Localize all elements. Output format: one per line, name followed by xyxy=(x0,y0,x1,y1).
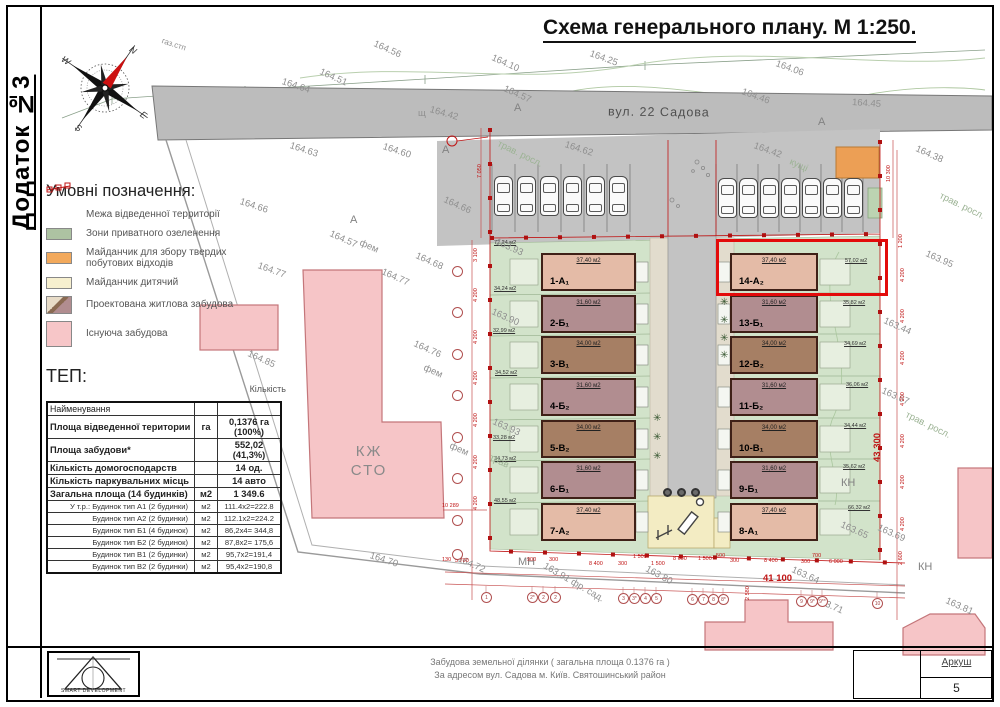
axis-bubble xyxy=(452,307,463,318)
sheetbox-divider xyxy=(920,651,921,698)
building-area: 31,60 м2 xyxy=(732,466,816,472)
building-area: 34,00 м2 xyxy=(732,425,816,431)
tep-cell: м2 xyxy=(195,537,218,549)
axis-label: 3* xyxy=(632,596,637,602)
existing-swatch xyxy=(46,321,72,347)
tep-cell: Кількість домогосподарств xyxy=(47,462,195,475)
axis-label: 6 xyxy=(691,597,694,603)
building-2: 31,60 м22-Б₁ xyxy=(541,295,636,333)
tep-cell: 86,2х4= 344,8 xyxy=(218,525,282,537)
appendix-label: Додаток №3 xyxy=(8,30,38,230)
tep-cell: м2 xyxy=(195,525,218,537)
dimension-label: 7 050 xyxy=(477,164,483,178)
building-id: 10-В₁ xyxy=(739,443,764,454)
tep-cell: м2 xyxy=(195,513,218,525)
legend-item-boundary: Межа відведенної территорії xyxy=(46,209,286,221)
tep-cell: м2 xyxy=(195,561,218,574)
building-10: 34,00 м210-В₁ xyxy=(730,420,818,458)
tep-cell: 112.1х2=224.2 xyxy=(218,513,282,525)
tree-icon: ✳ xyxy=(653,451,661,462)
car-icon xyxy=(844,178,863,218)
dimension-label: 1 200 xyxy=(898,234,904,248)
tep-cell: 95,4х2=190,8 xyxy=(218,561,282,574)
garden-area-label: 34,52 м2 xyxy=(495,370,517,376)
tree-icon: ✳ xyxy=(720,315,728,326)
axis-bubble: 4 xyxy=(640,593,651,604)
building-9: 31,60 м29-Б₁ xyxy=(730,461,818,499)
building-area: 34,00 м2 xyxy=(543,341,634,347)
tep-cell: 14 авто xyxy=(218,475,282,488)
axis-bubble: 5 xyxy=(651,593,662,604)
axis-bubble xyxy=(452,473,463,484)
tep-cell xyxy=(195,462,218,475)
dimension-label: 4 200 xyxy=(900,392,906,406)
axis-bubble: 2 xyxy=(550,592,561,603)
tep-cell: м2 xyxy=(195,549,218,561)
building-11: 31,60 м211-Б₂ xyxy=(730,378,818,416)
car-icon xyxy=(494,176,513,216)
table-row: Будинок тип В1 (2 будинки)м295,7х2=191,4 xyxy=(47,549,281,561)
building-area: 31,60 м2 xyxy=(543,300,634,306)
table-row: Найменування xyxy=(47,402,281,416)
road-axis-label: А xyxy=(350,214,357,226)
table-row: Загальна площа (14 будинків)м21 349.6 xyxy=(47,488,281,501)
dimension-label: 4 200 xyxy=(473,371,479,385)
footer-divider xyxy=(8,646,992,648)
sheet-label: Аркуш xyxy=(922,657,991,668)
tep-cell: 95,7х2=191,4 xyxy=(218,549,282,561)
dimension-label: 700 xyxy=(812,553,821,559)
tep-qty-header: Кількість xyxy=(250,384,286,394)
car-icon xyxy=(563,176,582,216)
axis-bubble: 8* xyxy=(718,594,729,605)
road-axis-label: А xyxy=(514,102,521,114)
legend-item-green: Зони приватного озеленення xyxy=(46,228,286,240)
dimension-label: 4 200 xyxy=(900,351,906,365)
dimension-label: 4 200 xyxy=(473,455,479,469)
legend-item-label: Майданчик дитячий xyxy=(86,277,246,289)
axis-bubble: 6 xyxy=(687,594,698,605)
legend-item-label: Майданчик для збору твердих побутових ві… xyxy=(86,247,246,270)
garden-area-label: 34,69 м2 xyxy=(844,341,866,347)
dimension-label: 2 600 xyxy=(898,551,904,565)
footer-line1: Забудова земельної ділянки ( загальна пл… xyxy=(340,656,760,669)
sheet-number-box: Аркуш 5 xyxy=(853,650,992,699)
tree-icon: ✳ xyxy=(653,413,661,424)
car-icon xyxy=(760,178,779,218)
sheet-inner-border xyxy=(40,7,42,698)
green-zone-swatch xyxy=(46,228,72,240)
table-row: Будинок тип Б2 (2 будинок)м287,8х2= 175,… xyxy=(47,537,281,549)
car-icon xyxy=(718,178,737,218)
playground-swatch xyxy=(46,277,72,289)
tep-cell: Будинок тип В1 (2 будинки) xyxy=(47,549,195,561)
axis-bubble: 10 xyxy=(872,598,883,609)
waste-swatch xyxy=(46,252,72,264)
axis-bubble xyxy=(452,349,463,360)
tep-cell xyxy=(195,439,218,462)
elevation-label: 164.45 xyxy=(852,97,882,110)
dimension-label: 4 200 xyxy=(473,496,479,510)
tep-cell: 1 349.6 xyxy=(218,488,282,501)
annotation-label: КН xyxy=(918,561,932,573)
building-id: 8-А₁ xyxy=(739,526,758,537)
dimension-label: 300 xyxy=(730,558,739,564)
dimension-label: 1 500 xyxy=(651,561,665,567)
car-icon xyxy=(739,178,758,218)
building-6: 31,60 м26-Б₁ xyxy=(541,461,636,499)
axis-bubble xyxy=(452,432,463,443)
legend-item-playground: Майданчик дитячий xyxy=(46,277,286,289)
tree-icon: ✳ xyxy=(653,432,661,443)
garden-area-label: 66,32 м2 xyxy=(848,505,870,511)
building-area: 37,40 м2 xyxy=(732,508,816,514)
tep-block: ТЕП: Кількість Найменування Площа відвед… xyxy=(46,366,286,574)
axis-bubble xyxy=(452,549,463,560)
axis-label: 3 xyxy=(622,596,625,602)
dimension-total-label: 43 300 xyxy=(872,433,883,462)
building-id: 4-Б₂ xyxy=(550,401,570,412)
tep-value-cell xyxy=(218,402,282,416)
car-icon xyxy=(781,178,800,218)
tep-cell xyxy=(195,475,218,488)
table-row: Будинок тип Б1 (4 будинок)м286,2х4= 344,… xyxy=(47,525,281,537)
sheetbox-divider xyxy=(920,677,991,678)
dimension-label: 300 xyxy=(618,561,627,567)
building-id: 1-А₁ xyxy=(550,276,569,287)
building-area: 34,00 м2 xyxy=(732,341,816,347)
building-id: 3-В₁ xyxy=(550,359,569,370)
dimension-label: 8 400 xyxy=(589,561,603,567)
tep-cell: 552,02 (41,3%) xyxy=(218,439,282,462)
dimension-label: 4 200 xyxy=(900,475,906,489)
dimension-label: 10 289 xyxy=(442,503,459,509)
axis-label: 2 xyxy=(554,595,557,601)
page-title: Схема генерального плану. М 1:250. xyxy=(543,16,916,43)
dimension-label: 10 300 xyxy=(886,165,892,182)
garden-area-label: 32,99 м2 xyxy=(493,328,515,334)
garden-area-label: 48,55 м2 xyxy=(494,498,516,504)
building-area: 31,60 м2 xyxy=(543,383,634,389)
garden-area-label: 35,82 м2 xyxy=(843,300,865,306)
axis-label: 5 xyxy=(655,596,658,602)
building-3: 34,00 м23-В₁ xyxy=(541,336,636,374)
tep-cell: м2 xyxy=(195,488,218,501)
dimension-label: 2 580 xyxy=(745,586,751,600)
garage-label-line1: КЖ xyxy=(344,443,394,462)
legend-item-proposed: Проектована житлова забудова xyxy=(46,296,286,314)
car-icon xyxy=(802,178,821,218)
dimension-label: 6 000 xyxy=(829,559,843,565)
garage-label-line2: СТО xyxy=(344,462,394,481)
building-4: 31,60 м24-Б₂ xyxy=(541,378,636,416)
dimension-label: 500 xyxy=(716,553,725,559)
legend-item-label: Існуюча забудова xyxy=(86,328,246,340)
garden-area-label: 34,44 м2 xyxy=(844,423,866,429)
dimension-label: 4 200 xyxy=(900,268,906,282)
table-row: Будинок тип А2 (2 будинки)м2112.1х2=224.… xyxy=(47,513,281,525)
dimension-label: 4 200 xyxy=(473,413,479,427)
dimension-label: 130 xyxy=(442,557,451,563)
building-id: 2-Б₁ xyxy=(550,318,569,329)
building-8: 37,40 м28-А₁ xyxy=(730,503,818,541)
building-5: 34,00 м25-В₂ xyxy=(541,420,636,458)
axis-bubble: 2 xyxy=(538,592,549,603)
building-7: 37,40 м27-А₂ xyxy=(541,503,636,541)
building-id: 6-Б₁ xyxy=(550,484,569,495)
highlight-building-14 xyxy=(716,239,888,296)
tep-cell: Загальна площа (14 будинків) xyxy=(47,488,195,501)
dimension-label: 3 100 xyxy=(473,248,479,262)
legend: Умовні позначення: Межа відведенної терр… xyxy=(46,182,286,354)
sheet-border xyxy=(6,5,994,702)
dimension-label: 1 500 xyxy=(633,554,647,560)
tep-cell: 111.4х2=222.8 xyxy=(218,501,282,513)
dimension-label: 4 200 xyxy=(900,309,906,323)
car-icon xyxy=(586,176,605,216)
street-name-label: вул. 22 Садова xyxy=(608,105,710,120)
building-area: 31,60 м2 xyxy=(732,383,816,389)
tep-cell: Кількість паркувальних місць xyxy=(47,475,195,488)
building-area: 31,60 м2 xyxy=(543,466,634,472)
tep-cell: Будинок тип А2 (2 будинки) xyxy=(47,513,195,525)
building-id: 12-В₂ xyxy=(739,359,764,370)
building-area: 37,40 м2 xyxy=(543,508,634,514)
annotation-label: щ xyxy=(418,108,426,119)
road-axis-label: А xyxy=(442,144,449,156)
axis-bubble: 1 xyxy=(481,592,492,603)
table-row: Кількість паркувальних місць14 авто xyxy=(47,475,281,488)
legend-item-label: Проектована житлова забудова xyxy=(86,299,246,311)
building-1: 37,40 м21-А₁ xyxy=(541,253,636,291)
tree-row-icon xyxy=(691,488,700,497)
tep-cell: м2 xyxy=(195,501,218,513)
tep-cell: 87,8х2= 175,6 xyxy=(218,537,282,549)
garden-area-label: 35,62 м2 xyxy=(843,464,865,470)
garden-area-label: 57,02 м2 xyxy=(845,258,867,264)
tep-cell: Будинок тип В2 (2 будинки) xyxy=(47,561,195,574)
tep-cell: га xyxy=(195,416,218,439)
axis-bubble xyxy=(452,515,463,526)
tree-icon: ✳ xyxy=(720,297,728,308)
axis-label: 7 xyxy=(702,597,705,603)
tep-cell: У т.р.: Будинок тип А1 (2 будинки) xyxy=(47,501,195,513)
dimension-label: 300 xyxy=(549,557,558,563)
plan-sheet: N E S W Додаток №3 Схема генерального пл… xyxy=(0,0,1000,707)
building-12: 34,00 м212-В₂ xyxy=(730,336,818,374)
axis-bubble: 3* xyxy=(629,593,640,604)
tep-unit-cell xyxy=(195,402,218,416)
dimension-label: 4 200 xyxy=(473,330,479,344)
building-area: 37,40 м2 xyxy=(543,258,634,264)
axis-label: 9* xyxy=(810,599,815,605)
tree-row-icon xyxy=(663,488,672,497)
building-id: 7-А₂ xyxy=(550,526,570,537)
axis-label: 9 xyxy=(800,599,803,605)
legend-item-existing: Існуюча забудова xyxy=(46,321,286,347)
car-icon xyxy=(823,178,842,218)
building-id: 11-Б₂ xyxy=(739,401,763,412)
building-area: 31,60 м2 xyxy=(732,300,816,306)
garden-area-label: 34,24 м2 xyxy=(494,286,516,292)
axis-bubble: 9** xyxy=(817,596,828,607)
dimension-label: 900 xyxy=(527,557,536,563)
dimension-label: 4 200 xyxy=(900,434,906,448)
building-id: 5-В₂ xyxy=(550,443,570,454)
axis-label: 10 xyxy=(875,601,881,607)
tep-name-header: Найменування xyxy=(47,402,195,416)
axis-bubble: 3 xyxy=(618,593,629,604)
car-icon xyxy=(540,176,559,216)
table-row: У т.р.: Будинок тип А1 (2 будинки)м2111.… xyxy=(47,501,281,513)
table-row: Будинок тип В2 (2 будинки)м295,4х2=190,8 xyxy=(47,561,281,574)
car-icon xyxy=(609,176,628,216)
company-logo: SMART DEVELOPMENT xyxy=(47,651,140,697)
car-icon xyxy=(517,176,536,216)
axis-label: 9** xyxy=(819,599,826,605)
footer-line2: За адресом вул. Садова м. Київ. Святошин… xyxy=(340,669,760,682)
axis-bubble: 2* xyxy=(527,592,538,603)
dimension-label: 4 200 xyxy=(900,517,906,531)
dimension-label: 8 600 xyxy=(673,556,687,562)
sheet-number: 5 xyxy=(922,681,991,695)
tep-cell: Площа відведенної територии xyxy=(47,416,195,439)
axis-bubble: 9 xyxy=(796,596,807,607)
table-row: Кількість домогосподарств14 од. xyxy=(47,462,281,475)
road-axis-label: А xyxy=(818,116,825,128)
axis-bubble xyxy=(452,390,463,401)
axis-label: 2* xyxy=(530,595,535,601)
legend-item-label: Зони приватного озеленення xyxy=(86,228,246,240)
company-name: SMART DEVELOPMENT xyxy=(49,688,138,694)
existing-garage-label: КЖ СТО xyxy=(344,443,394,481)
legend-item-label: Межа відведенної территорії xyxy=(86,209,246,221)
tree-row-icon xyxy=(677,488,686,497)
axis-bubble xyxy=(452,266,463,277)
proposed-housing-swatch xyxy=(46,296,72,314)
building-id: 9-Б₁ xyxy=(739,484,758,495)
legend-item-waste: Майданчик для збору твердих побутових ві… xyxy=(46,247,286,270)
tree-icon: ✳ xyxy=(720,350,728,361)
tep-table: Найменування Площа відведенної територии… xyxy=(46,401,282,574)
axis-label: 1 xyxy=(485,595,488,601)
axis-label: 2 xyxy=(542,595,545,601)
building-13: 31,60 м213-Б₁ xyxy=(730,295,818,333)
dimension-label: 8 400 xyxy=(764,558,778,564)
tep-cell: Будинок тип Б1 (4 будинок) xyxy=(47,525,195,537)
legend-title: Умовні позначення: xyxy=(46,182,286,201)
tep-cell: Будинок тип Б2 (2 будинок) xyxy=(47,537,195,549)
axis-label: 8 xyxy=(712,597,715,603)
axis-label: 4 xyxy=(644,596,647,602)
axis-label: 8* xyxy=(721,597,726,603)
footer-description: Забудова земельної ділянки ( загальна пл… xyxy=(340,656,760,682)
tep-cell: 14 од. xyxy=(218,462,282,475)
dimension-label: 1 500 xyxy=(698,556,712,562)
table-row: Площа забудови*552,02 (41,3%) xyxy=(47,439,281,462)
annotation-label: КН xyxy=(841,477,855,489)
garden-area-label: 36,06 м2 xyxy=(846,382,868,388)
building-id: 13-Б₁ xyxy=(739,318,764,329)
dimension-label: 300 xyxy=(801,559,810,565)
table-row: Площа відведенної териториига0,1376 га (… xyxy=(47,416,281,439)
dimension-total-label: 41 100 xyxy=(763,573,792,584)
tep-cell: Площа забудови* xyxy=(47,439,195,462)
dimension-label: 4 200 xyxy=(473,288,479,302)
tree-icon: ✳ xyxy=(720,333,728,344)
tep-cell: 0,1376 га (100%) xyxy=(218,416,282,439)
building-area: 34,00 м2 xyxy=(543,425,634,431)
